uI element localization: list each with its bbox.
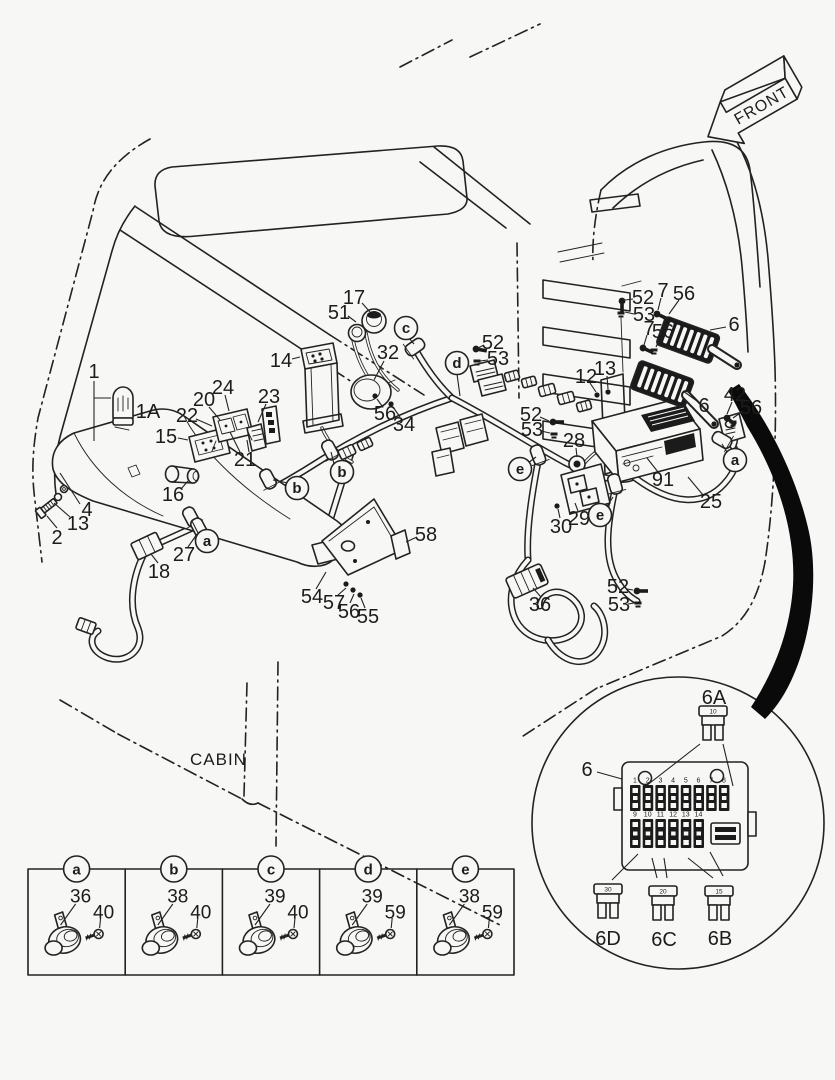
switch-14 [301,343,343,433]
screw-2-and-washers [35,486,67,519]
connector-36 [505,563,549,599]
bulb-1a [113,387,133,430]
parts-diagram-page: 123456789101112131410302015 FRONT CABIN … [0,0,835,1080]
harness-tube-inner [92,550,146,659]
radio-91 [592,399,703,482]
monitor-assembly [52,409,347,566]
horn-bracket-28-29-30 [561,456,610,514]
bracket-42 [719,413,745,443]
wiring-diagram-svg [0,0,835,1080]
